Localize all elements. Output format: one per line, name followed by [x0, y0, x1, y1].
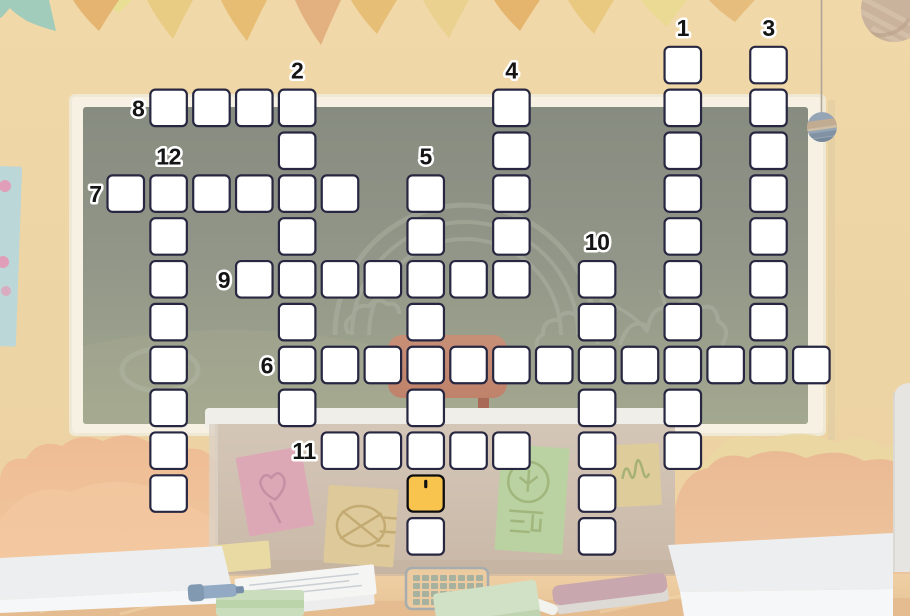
svg-text:5: 5: [420, 143, 433, 169]
svg-text:4: 4: [505, 58, 518, 84]
svg-text:8: 8: [132, 95, 145, 121]
svg-text:3: 3: [762, 15, 774, 41]
svg-text:11: 11: [292, 438, 316, 464]
svg-text:1: 1: [677, 15, 690, 41]
svg-text:12: 12: [156, 143, 181, 169]
svg-text:10: 10: [585, 229, 610, 255]
svg-text:7: 7: [89, 181, 101, 207]
svg-text:2: 2: [291, 58, 303, 84]
svg-text:6: 6: [261, 353, 273, 379]
svg-text:9: 9: [218, 267, 230, 293]
